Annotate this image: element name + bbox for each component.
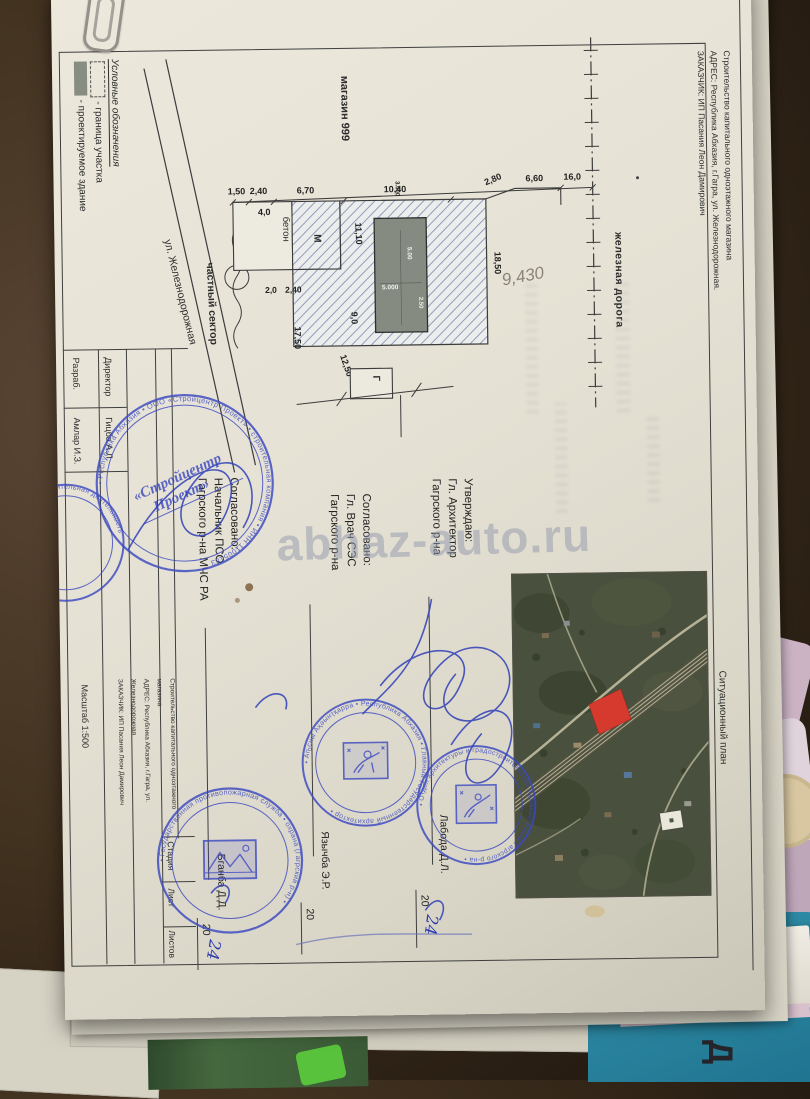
container-letter-d: Д	[700, 1040, 739, 1064]
pen-stroke-bottom	[296, 933, 472, 945]
photo-scene: Вечер СБ Д Строительство капитального од…	[0, 0, 810, 1080]
stains	[229, 176, 649, 922]
pen-signatures	[127, 459, 514, 924]
signatures-overlay	[51, 0, 765, 1020]
paper-sheet: Строительство капитального одноэтажного …	[51, 0, 765, 1020]
